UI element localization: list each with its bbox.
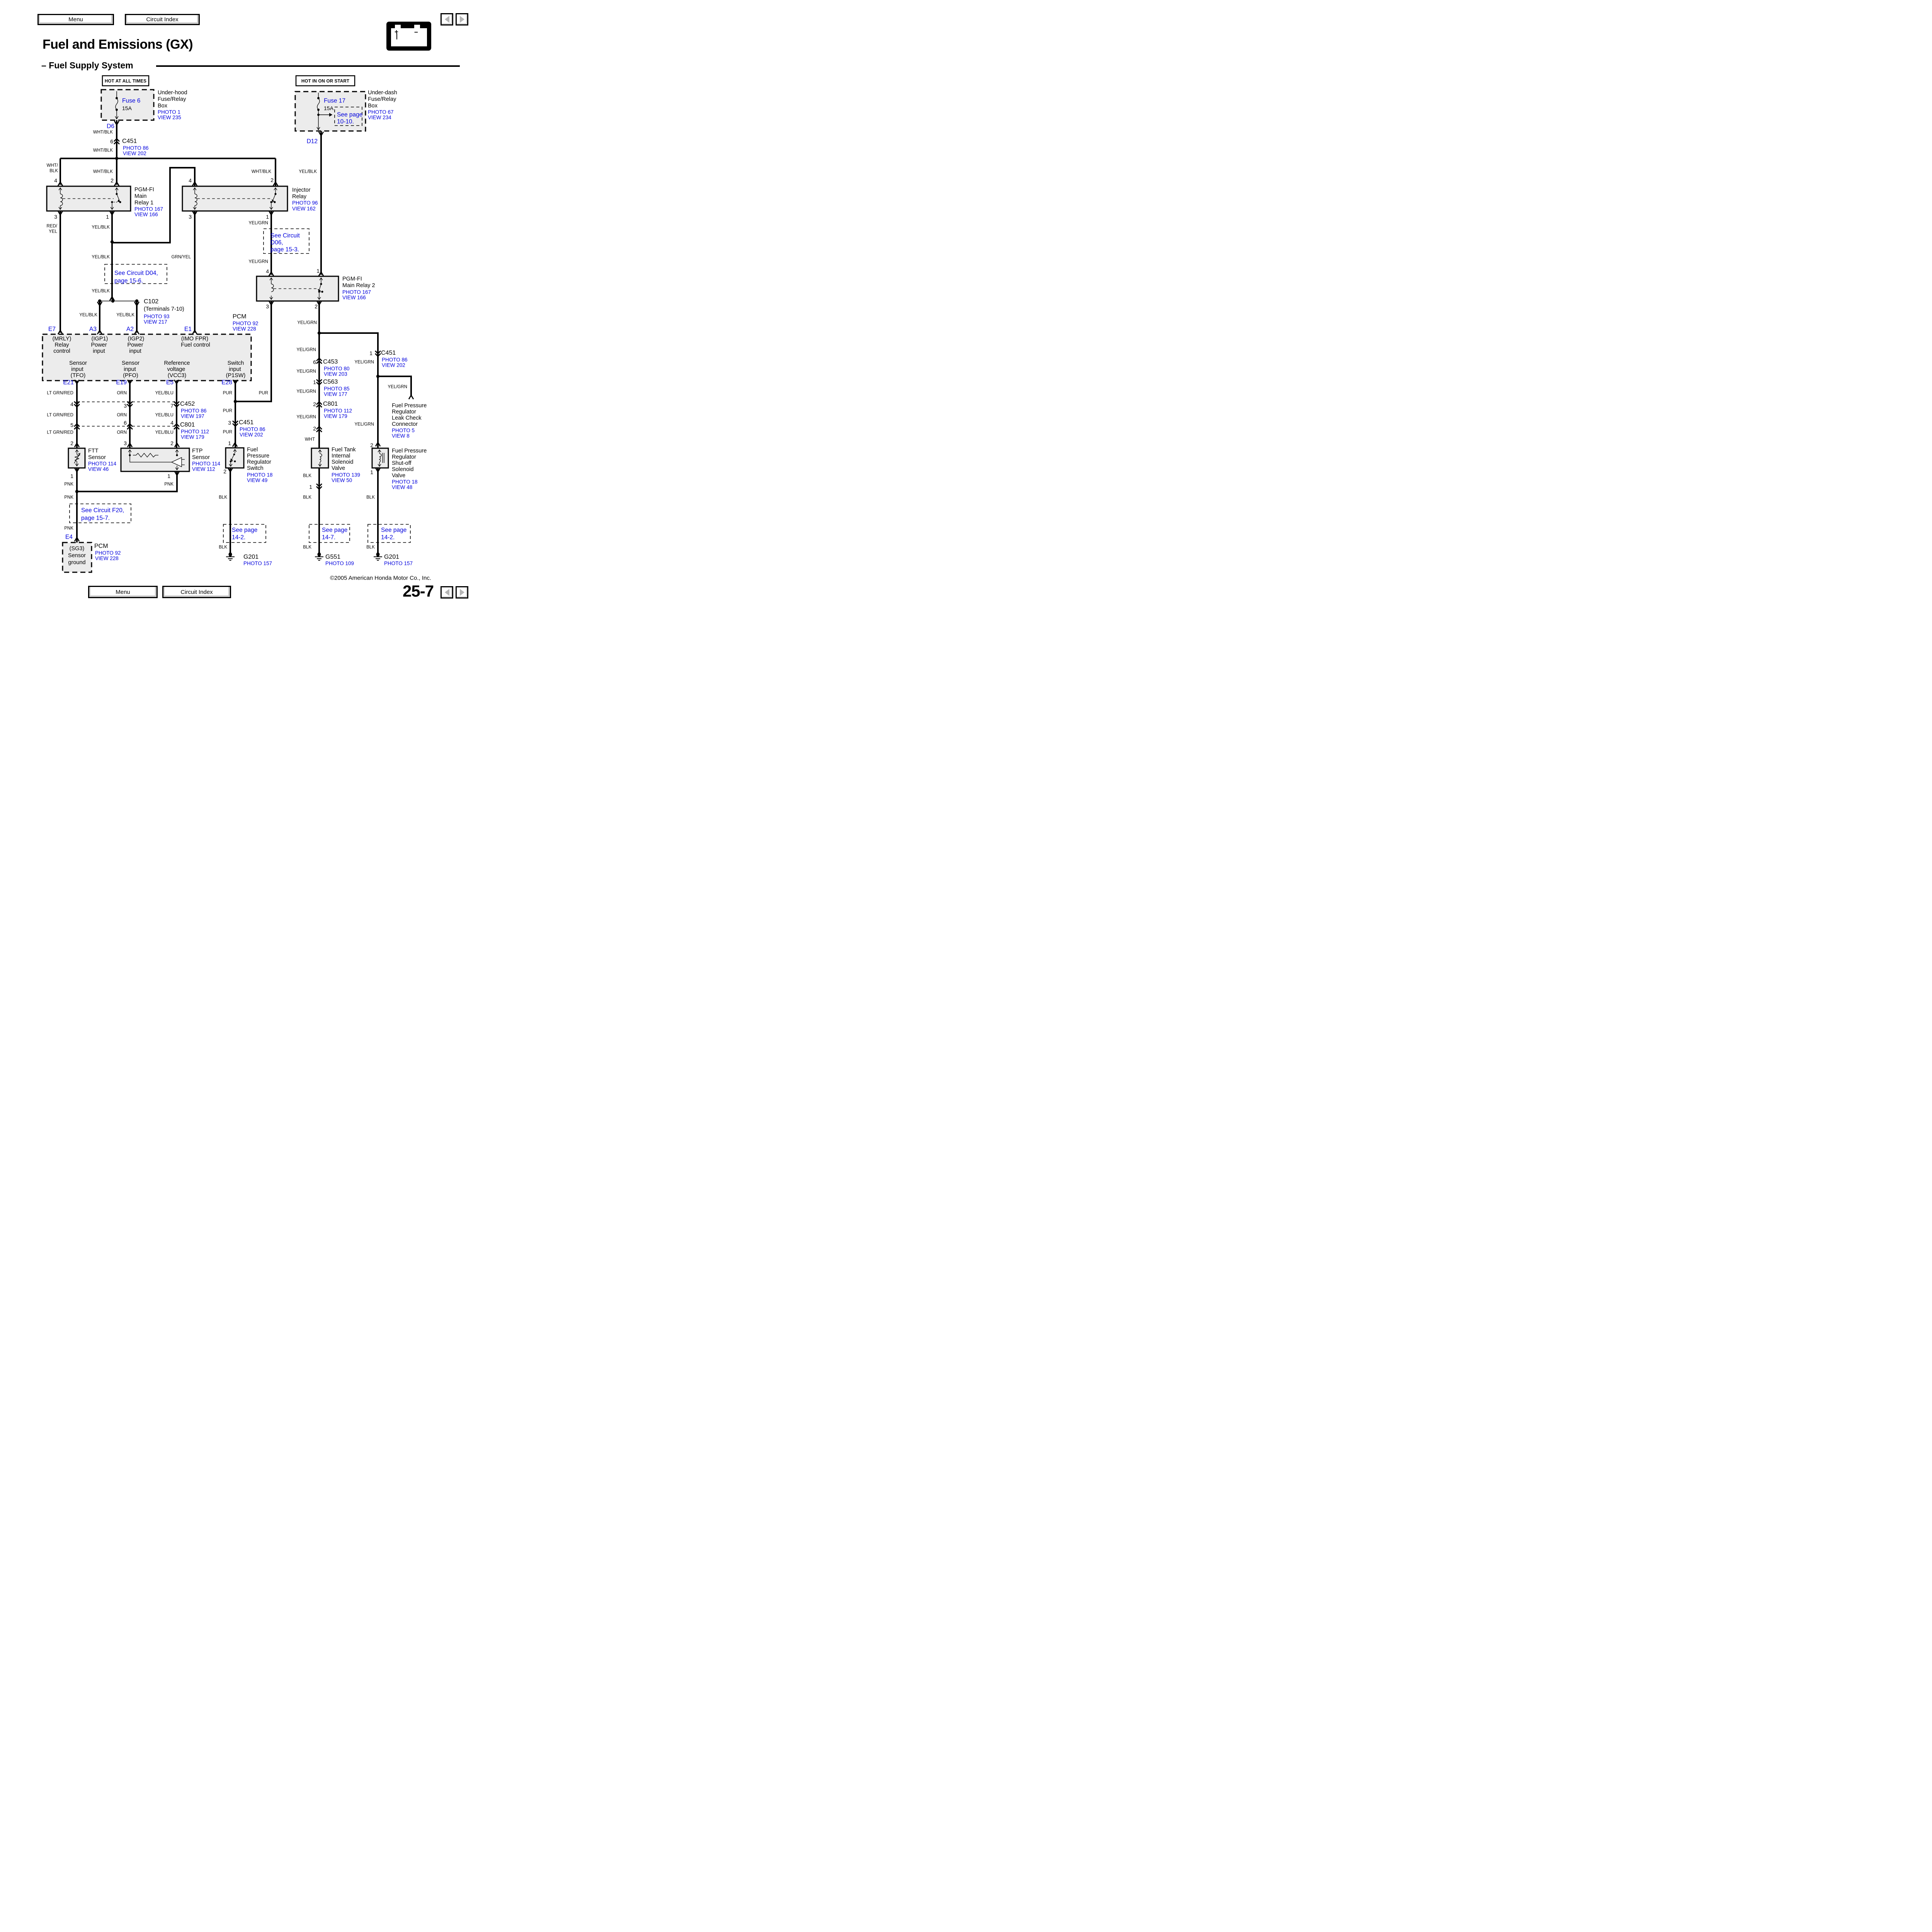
diagram-label: input xyxy=(129,349,141,354)
wire-color-label: PUR xyxy=(259,391,268,396)
reference-label: PHOTO 114 xyxy=(192,461,220,466)
diagram-label: 1 xyxy=(70,473,73,479)
wire-color-label: GRN/YEL xyxy=(172,255,191,260)
reference-label: VIEW 203 xyxy=(324,371,347,377)
wire-color-label: WHT/ xyxy=(47,163,58,168)
wire-color-label: YEL/GRN xyxy=(355,360,374,365)
reference-label: 14-2. xyxy=(381,534,395,541)
diagram-label: 1 xyxy=(370,469,373,475)
wire-color-label: LT GRN/RED xyxy=(47,413,73,418)
wire-color-label: LT GRN/RED xyxy=(47,430,73,435)
reference-label: PHOTO 92 xyxy=(95,550,121,556)
diagram-label: (TFO) xyxy=(71,373,86,379)
wire-color-label: YEL/BLK xyxy=(92,255,110,260)
diagram-label: ©2005 American Honda Motor Co., Inc. xyxy=(330,575,431,581)
reference-label: VIEW 235 xyxy=(158,115,181,120)
diagram-label: (IGP1) xyxy=(92,336,108,342)
diagram-label: 2 xyxy=(70,440,73,446)
reference-label: VIEW 162 xyxy=(292,206,316,211)
reference-label: VIEW 166 xyxy=(342,295,366,300)
diagram-label: 6 xyxy=(313,359,316,365)
diagram-label: 4 xyxy=(189,178,192,183)
diagram-label: 2 xyxy=(315,304,318,309)
diagram-label: Box xyxy=(368,103,378,109)
diagram-label: 2 xyxy=(111,178,114,183)
diagram-label: 4 xyxy=(170,420,173,425)
diagram-label: E21 xyxy=(63,379,74,386)
reference-label: VIEW 177 xyxy=(324,391,347,397)
wire-color-label: PNK xyxy=(64,526,73,531)
diagram-label: Sensor xyxy=(122,361,139,366)
diagram-label: input xyxy=(71,367,83,372)
diagram-label: A2 xyxy=(126,326,134,332)
diagram-label: Box xyxy=(158,103,167,109)
reference-label: VIEW 112 xyxy=(192,466,215,472)
reference-label: PHOTO 67 xyxy=(368,109,394,115)
reference-label: VIEW 8 xyxy=(392,433,410,439)
reference-label: PHOTO 157 xyxy=(384,561,413,566)
wire-color-label: BLK xyxy=(366,545,375,550)
reference-label: See Circuit F20, xyxy=(81,507,124,514)
diagram-label: (Terminals 7-10) xyxy=(144,306,184,312)
wire-color-label: YEL/GRN xyxy=(297,348,316,352)
circuit-index-button-bottom[interactable]: Circuit Index xyxy=(162,586,231,598)
diagram-label: C801 xyxy=(323,401,338,407)
diagram-label: Fuel Tank xyxy=(332,447,356,453)
diagram-label: 3 xyxy=(228,420,231,425)
wire-color-label: YEL/GRN xyxy=(297,389,316,394)
diagram-label: Fuel Pressure xyxy=(392,448,427,454)
diagram-labels: HOT AT ALL TIMESHOT IN ON OR STARTUnder-… xyxy=(0,0,473,612)
diagram-label: Injector xyxy=(292,187,311,193)
diagram-label: 2 xyxy=(223,469,226,474)
wire-color-label: PUR xyxy=(223,391,232,396)
diagram-label: (IGP2) xyxy=(128,336,145,342)
diagram-label: Connector xyxy=(392,422,418,427)
diagram-label: (MRLY) xyxy=(53,336,71,342)
reference-label: VIEW 228 xyxy=(95,556,119,561)
diagram-label: Main Relay 2 xyxy=(342,283,375,289)
reference-label: PHOTO 86 xyxy=(181,408,207,413)
circuit-index-button-bottom-label: Circuit Index xyxy=(180,589,213,595)
diagram-label: E4 xyxy=(65,534,73,540)
diagram-label: C452 xyxy=(180,401,195,407)
left-arrow-icon xyxy=(445,589,449,596)
wire-color-label: ORN xyxy=(117,391,127,396)
diagram-label: Relay 1 xyxy=(134,200,153,206)
reference-label: PHOTO 139 xyxy=(332,472,360,478)
diagram-label: Fuel Pressure xyxy=(392,403,427,409)
diagram-label: PCM xyxy=(233,314,247,320)
diagram-label: Reference xyxy=(164,361,190,366)
diagram-label: E7 xyxy=(48,326,56,332)
diagram-label: Leak Check xyxy=(392,415,422,421)
diagram-label: E1 xyxy=(184,326,192,332)
reference-label: PHOTO 157 xyxy=(243,561,272,566)
reference-label: PHOTO 86 xyxy=(382,357,408,362)
diagram-label: Solenoid xyxy=(392,467,413,473)
diagram-label: E28 xyxy=(221,379,232,386)
diagram-label: Pressure xyxy=(247,453,269,459)
diagram-label: 15A xyxy=(122,105,132,111)
diagram-label: Fuse 6 xyxy=(122,98,140,104)
reference-label: PHOTO 85 xyxy=(324,386,350,391)
reference-label: 10-10. xyxy=(337,119,354,125)
diagram-label: Switch xyxy=(228,361,244,366)
reference-label: See Circuit D04, xyxy=(114,270,158,276)
diagram-label: 2 xyxy=(313,426,316,431)
diagram-label: Under-hood xyxy=(158,90,187,96)
wire-color-label: PNK xyxy=(164,482,173,487)
reference-label: PHOTO 86 xyxy=(240,427,265,432)
diagram-label: 4 xyxy=(70,401,73,407)
wire-color-label: BLK xyxy=(219,495,227,500)
menu-button-bottom[interactable]: Menu xyxy=(88,586,158,598)
reference-label: PHOTO 112 xyxy=(324,408,352,413)
diagram-label: Under-dash xyxy=(368,90,397,96)
diagram-label: Sensor xyxy=(88,455,106,461)
diagram-label: 3 xyxy=(54,214,57,219)
diagram-label: (PFO) xyxy=(123,373,138,379)
wire-color-label: BLK xyxy=(366,495,375,500)
diagram-label: PCM xyxy=(94,543,108,549)
wire-color-label: YEL/GRN xyxy=(249,260,269,264)
reference-label: VIEW 197 xyxy=(181,413,204,419)
reference-label: page 15-7. xyxy=(81,515,110,521)
diagram-label: Relay xyxy=(292,194,306,200)
reference-label: VIEW 179 xyxy=(324,413,347,419)
diagram-label: (SG3) xyxy=(70,546,85,552)
reference-label: PHOTO 1 xyxy=(158,109,180,115)
diagram-label: 1 xyxy=(316,268,320,274)
diagram-label: C451 xyxy=(122,138,137,145)
diagram-label: G551 xyxy=(325,554,340,560)
reference-label: VIEW 228 xyxy=(233,326,256,332)
diagram-label: C563 xyxy=(323,379,338,385)
diagram-label: E19 xyxy=(116,379,127,386)
wire-color-label: WHT/BLK xyxy=(252,170,271,174)
diagram-label: PGM-FI xyxy=(134,187,154,193)
wire-color-label: PNK xyxy=(64,495,73,500)
diagram-label: PGM-FI xyxy=(342,276,362,282)
reference-label: PHOTO 5 xyxy=(392,428,415,433)
reference-label: 14-2. xyxy=(232,534,245,541)
reference-label: PHOTO 86 xyxy=(123,145,149,151)
reference-label: page 15-6. xyxy=(114,278,143,284)
reference-label: PHOTO 96 xyxy=(292,200,318,206)
diagram-label: G201 xyxy=(243,554,259,560)
reference-label: PHOTO 112 xyxy=(181,429,209,434)
diagram-label: voltage xyxy=(167,367,185,372)
reference-label: VIEW 217 xyxy=(144,319,167,325)
diagram-label: Fuel control xyxy=(181,342,210,348)
diagram-label: 1 xyxy=(313,379,316,385)
reference-label: VIEW 202 xyxy=(123,151,146,156)
reference-label: PHOTO 114 xyxy=(88,461,116,466)
diagram-label: input xyxy=(93,349,105,354)
reference-label: PHOTO 18 xyxy=(247,472,273,478)
diagram-label: Internal xyxy=(332,453,350,459)
reference-label: VIEW 202 xyxy=(382,362,405,368)
wire-color-label: YEL/BLU xyxy=(155,391,173,396)
reference-label: D06, xyxy=(270,240,283,246)
wire-color-label: YEL/BLK xyxy=(92,225,110,230)
reference-label: 14-7. xyxy=(322,534,335,541)
wire-color-label: YEL/GRN xyxy=(355,422,374,427)
diagram-label: FTP xyxy=(192,448,202,454)
diagram-label: input xyxy=(229,367,241,372)
diagram-label: 1 xyxy=(309,484,312,490)
diagram-label: 2 xyxy=(170,440,173,446)
wire-color-label: RED/ xyxy=(47,224,57,229)
diagram-label: Fuse/Relay xyxy=(158,97,186,102)
reference-label: PHOTO 92 xyxy=(233,321,259,326)
reference-label: VIEW 46 xyxy=(88,466,109,472)
diagram-label: 6 xyxy=(110,139,113,144)
wire-color-label: BLK xyxy=(303,545,311,550)
diagram-label: Power xyxy=(127,342,143,348)
manual-page: Menu Circuit Index + − Fuel and Emission… xyxy=(0,0,473,612)
diagram-label: Fuse/Relay xyxy=(368,97,396,102)
menu-button-bottom-label: Menu xyxy=(116,589,130,595)
diagram-label: HOT IN ON OR START xyxy=(301,79,349,84)
diagram-label: C453 xyxy=(323,359,338,365)
wire-color-label: WHT/BLK xyxy=(93,148,113,153)
reference-label: See page xyxy=(232,527,257,533)
reference-label: VIEW 50 xyxy=(332,478,352,483)
wire-color-label: YEL/BLU xyxy=(155,413,173,418)
diagram-label: G201 xyxy=(384,554,399,560)
diagram-label: 3 xyxy=(124,440,127,446)
diagram-label: 4 xyxy=(266,269,269,274)
wire-color-label: BLK xyxy=(303,474,311,478)
diagram-label: Shut-off xyxy=(392,461,412,466)
page-number: 25-7 xyxy=(403,582,434,600)
wire-color-label: PNK xyxy=(64,482,73,487)
reference-label: See page xyxy=(381,527,406,533)
diagram-label: 1 xyxy=(106,214,109,219)
wire-color-label: BLK xyxy=(49,169,58,173)
diagram-label: Sensor xyxy=(192,455,210,461)
diagram-label: Sensor xyxy=(68,553,86,559)
reference-label: PHOTO 18 xyxy=(392,479,418,485)
reference-label: PHOTO 80 xyxy=(324,366,350,371)
wire-color-label: YEL/BLK xyxy=(92,289,110,294)
diagram-label: (P1SW) xyxy=(226,373,246,379)
wire-color-label: PUR xyxy=(223,409,232,413)
diagram-label: 2 xyxy=(370,442,373,448)
reference-label: VIEW 166 xyxy=(134,212,158,217)
diagram-label: Main xyxy=(134,194,146,199)
wire-color-label: YEL xyxy=(49,230,57,234)
wire-color-label: YEL/GRN xyxy=(388,385,408,389)
diagram-label: C451 xyxy=(239,420,253,426)
diagram-label: A3 xyxy=(89,326,97,332)
wire-color-label: WHT/BLK xyxy=(93,130,113,135)
diagram-label: 1 xyxy=(266,214,269,219)
diagram-label: 1 xyxy=(167,473,170,479)
diagram-label: input xyxy=(124,367,136,372)
reference-label: page 15-3. xyxy=(270,247,299,253)
diagram-label: Relay xyxy=(54,342,69,348)
wire-color-label: YEL/GRN xyxy=(297,369,316,374)
wire-color-label: WHT/BLK xyxy=(93,170,113,174)
reference-label: PHOTO 93 xyxy=(144,314,170,319)
diagram-label: Regulator xyxy=(247,459,271,465)
wire-color-label: YEL/BLK xyxy=(299,170,317,174)
diagram-label: 2 xyxy=(270,177,274,183)
diagram-label: Power xyxy=(91,342,107,348)
wire-color-label: BLK xyxy=(303,495,311,500)
diagram-label: 3 xyxy=(124,403,127,408)
diagram-label: C102 xyxy=(144,299,158,305)
diagram-label: control xyxy=(53,349,70,354)
wire-color-label: ORN xyxy=(117,430,127,435)
diagram-label: Solenoid xyxy=(332,459,353,465)
diagram-label: Sensor xyxy=(69,361,87,366)
diagram-label: FTT xyxy=(88,448,99,454)
diagram-label: Fuse 17 xyxy=(324,98,345,104)
reference-label: VIEW 49 xyxy=(247,478,267,483)
diagram-label: 6 xyxy=(124,420,127,425)
diagram-label: ground xyxy=(68,560,85,566)
wire-color-label: LT GRN/RED xyxy=(47,391,73,396)
reference-label: VIEW 234 xyxy=(368,115,391,120)
diagram-label: D12 xyxy=(307,138,318,145)
diagram-label: 1 xyxy=(369,350,372,356)
reference-label: PHOTO 167 xyxy=(342,289,371,295)
wire-color-label: YEL/BLK xyxy=(116,313,134,318)
diagram-label: Switch xyxy=(247,466,264,471)
diagram-label: 1 xyxy=(228,440,231,446)
wire-color-label: YEL/GRN xyxy=(297,415,316,420)
diagram-label: C451 xyxy=(381,350,396,356)
diagram-label: Valve xyxy=(392,473,405,479)
diagram-label: Fuel xyxy=(247,447,258,453)
prev-page-button-bottom[interactable] xyxy=(440,586,453,599)
reference-label: See page xyxy=(337,112,362,118)
diagram-label: (VCC3) xyxy=(168,373,186,379)
diagram-label: 7 xyxy=(170,403,173,408)
reference-label: VIEW 202 xyxy=(240,432,263,437)
wire-color-label: YEL/GRN xyxy=(249,221,269,226)
diagram-label: 15A xyxy=(324,105,333,111)
wire-color-label: BLK xyxy=(219,545,227,550)
reference-label: VIEW 179 xyxy=(181,434,204,440)
diagram-label: E5 xyxy=(166,379,173,386)
wire-color-label: PUR xyxy=(223,430,232,435)
wire-color-label: ORN xyxy=(117,413,127,418)
diagram-label: Regulator xyxy=(392,454,416,460)
reference-label: VIEW 48 xyxy=(392,485,412,490)
wire-color-label: YEL/BLK xyxy=(79,313,97,318)
wire-color-label: YEL/GRN xyxy=(298,321,317,325)
reference-label: PHOTO 109 xyxy=(325,561,354,566)
diagram-label: HOT AT ALL TIMES xyxy=(105,79,146,84)
diagram-label: 4 xyxy=(54,178,57,183)
diagram-label: 5 xyxy=(70,422,73,428)
reference-label: See Circuit xyxy=(270,233,300,239)
diagram-label: D6 xyxy=(107,123,114,129)
diagram-label: (IMO FPR) xyxy=(181,336,208,342)
diagram-label: Valve xyxy=(332,466,345,471)
next-page-button-bottom[interactable] xyxy=(456,586,468,599)
diagram-label: C801 xyxy=(180,422,195,428)
diagram-label: 2 xyxy=(313,401,316,407)
right-arrow-icon xyxy=(460,589,464,596)
reference-label: PHOTO 167 xyxy=(134,206,163,212)
reference-label: See page xyxy=(322,527,347,533)
wire-color-label: YEL/BLU xyxy=(155,430,173,435)
wire-color-label: WHT xyxy=(305,437,315,442)
diagram-label: 3 xyxy=(189,214,192,219)
diagram-label: Regulator xyxy=(392,409,416,415)
diagram-label: 3 xyxy=(266,304,269,309)
